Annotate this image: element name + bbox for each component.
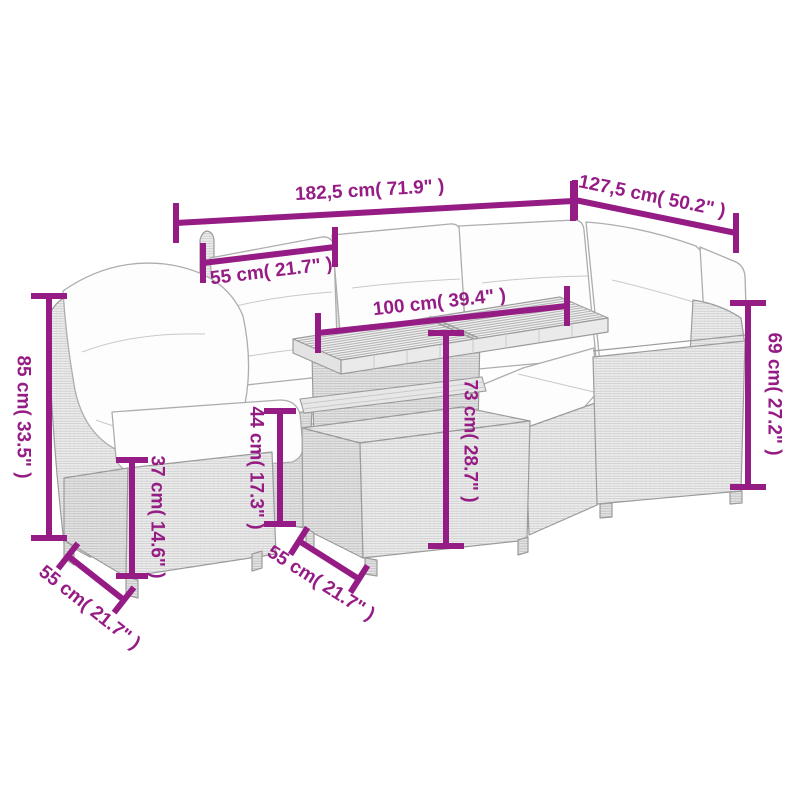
dim-label-table-height: 73 cm( 28.7" ) (460, 379, 481, 502)
stool-foot (518, 537, 528, 555)
product-dimension-diagram: 182,5 cm( 71.9" ) 127,5 cm( 50.2" ) 55 c… (0, 0, 800, 800)
dim-label-overall-width: 182,5 cm( 71.9" ) (294, 176, 444, 205)
dim-label-backrest-height: 85 cm( 33.5" ) (13, 355, 34, 478)
dim-label-armrest-height: 69 cm( 27.2" ) (764, 332, 785, 455)
sofa-foot (730, 491, 742, 504)
back-cushion (586, 222, 708, 364)
sofa-armrest (593, 341, 745, 504)
dim-label-seat-base-height: 37 cm( 14.6" ) (147, 455, 168, 578)
furniture-line-art: 182,5 cm( 71.9" ) 127,5 cm( 50.2" ) 55 c… (0, 0, 800, 800)
dim-label-seat-height: 44 cm( 17.3" ) (246, 406, 267, 529)
stool-illustration (302, 407, 530, 576)
sofa-foot (600, 503, 612, 518)
chair-foot (252, 551, 262, 571)
